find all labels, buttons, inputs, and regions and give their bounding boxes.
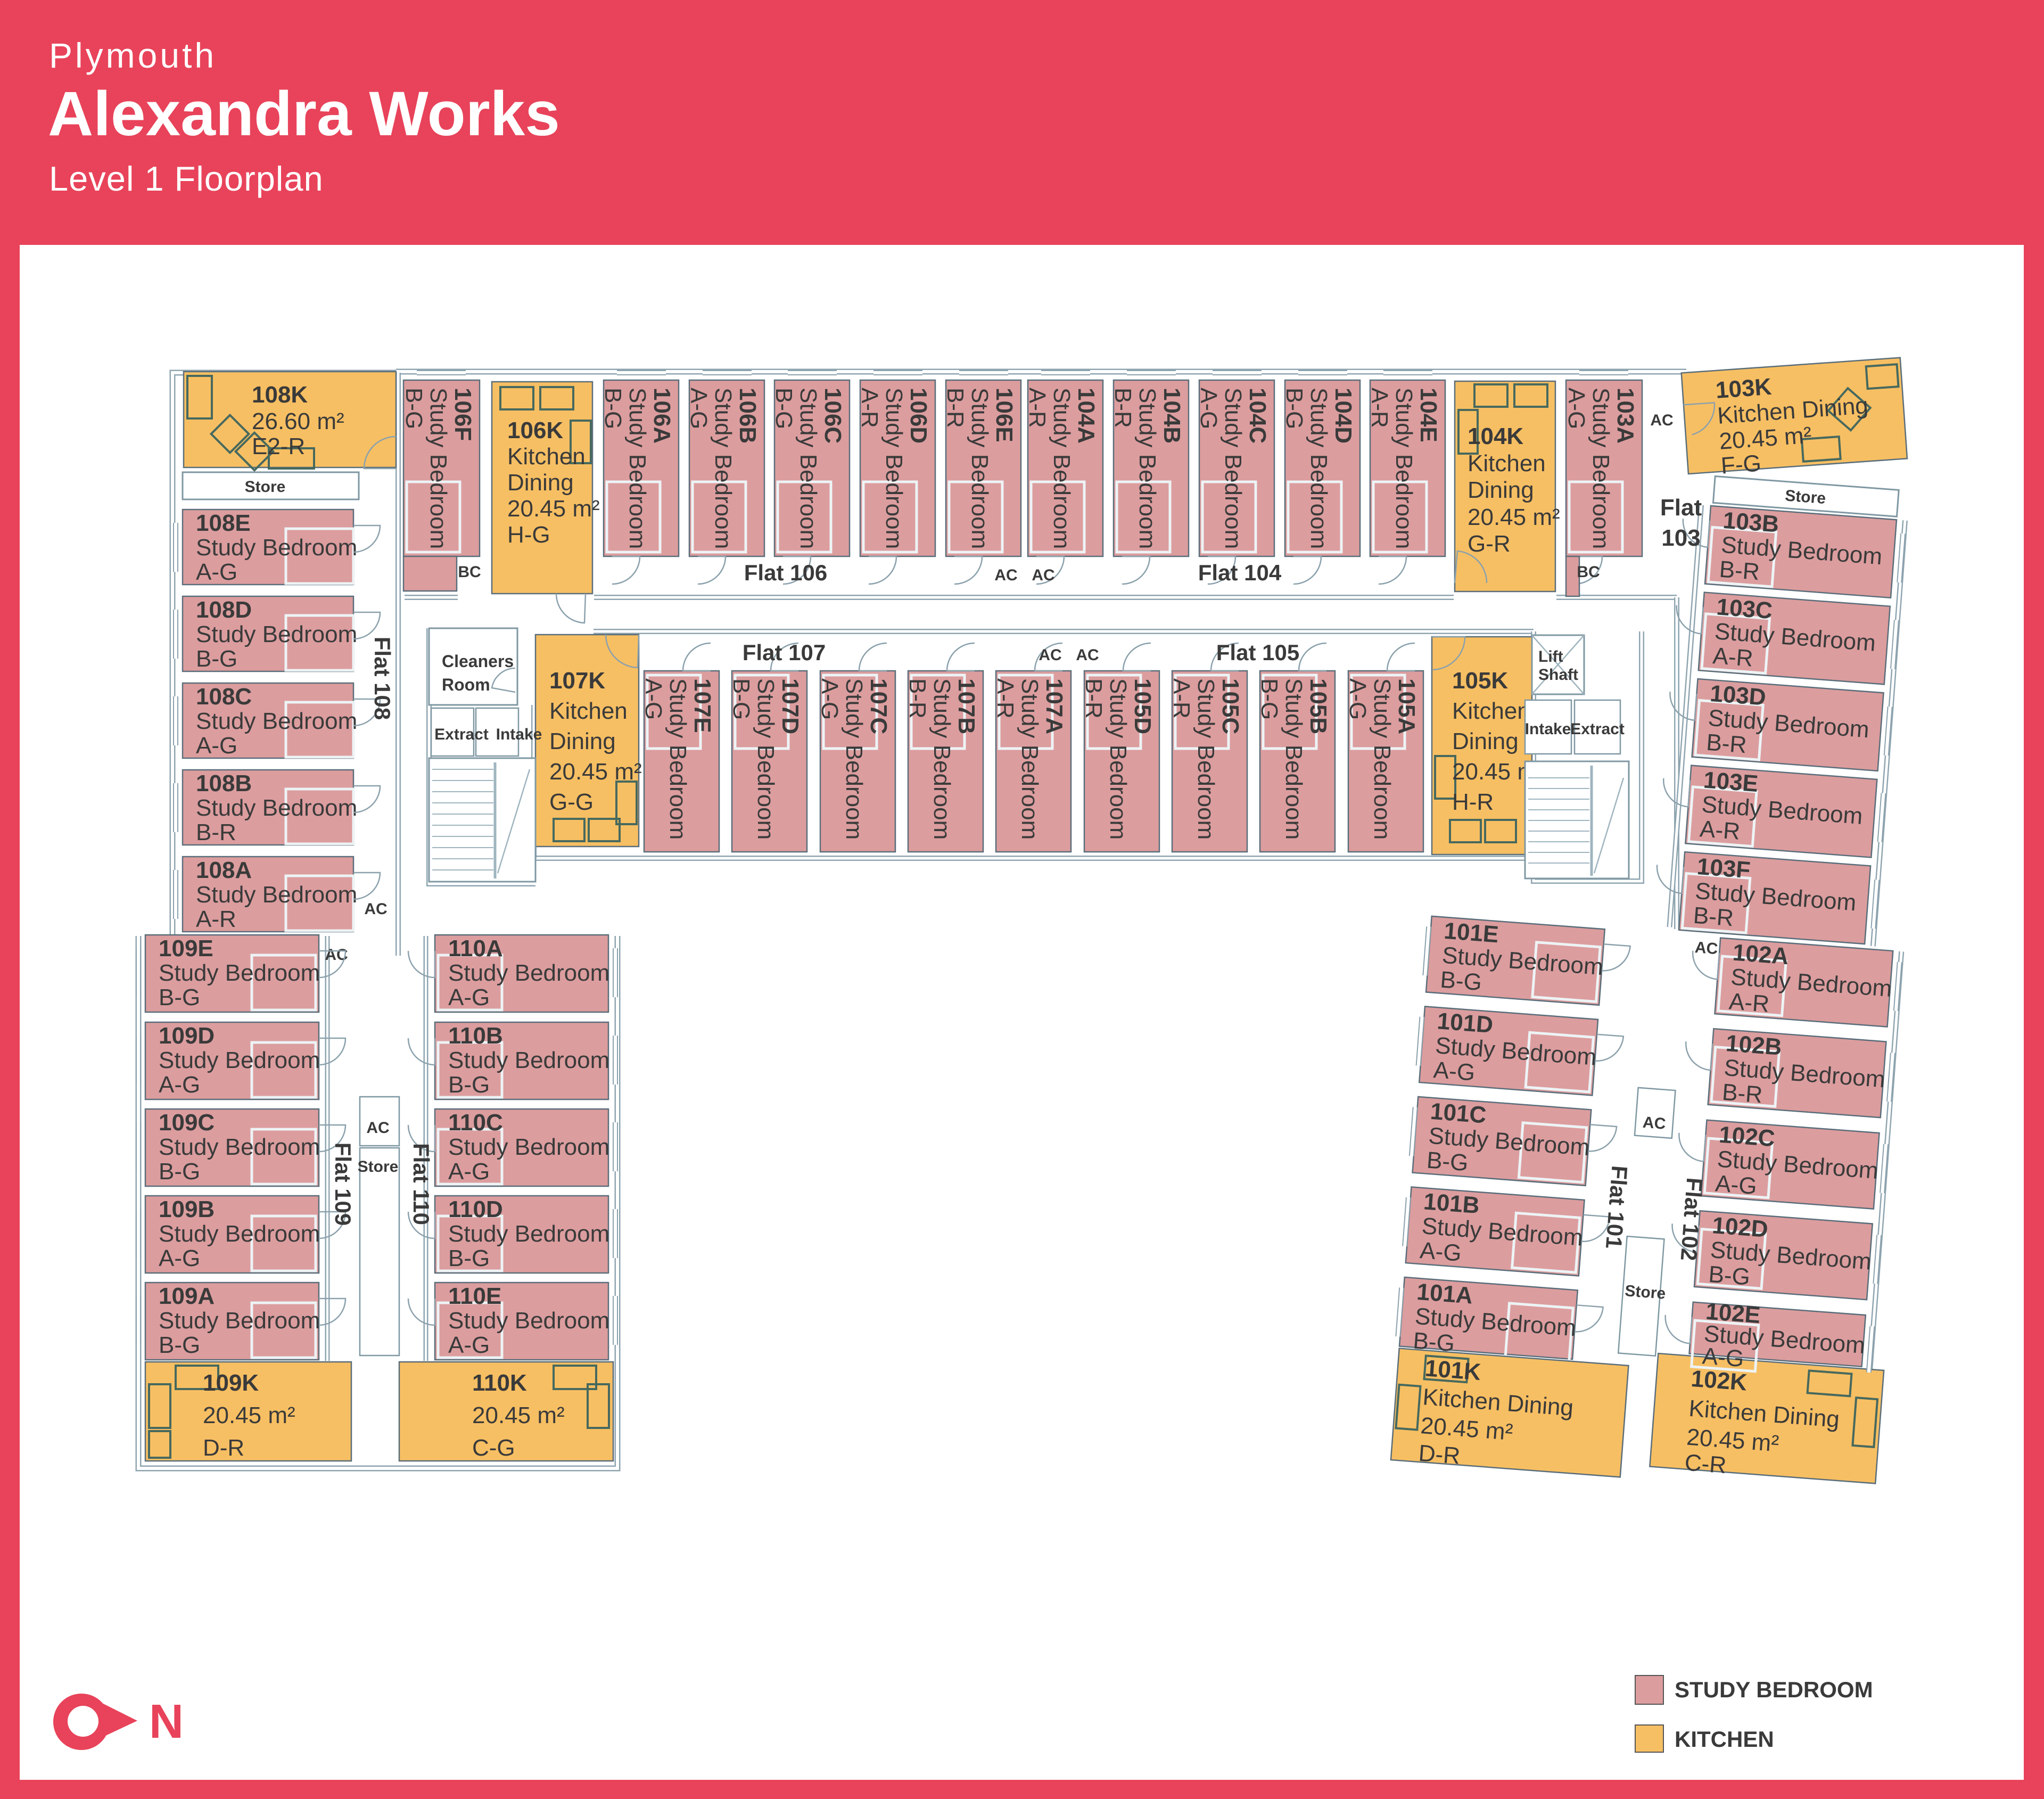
svg-text:BC: BC: [458, 563, 481, 581]
svg-text:107K: 107K: [549, 668, 605, 694]
svg-text:Lift: Lift: [1538, 648, 1563, 666]
svg-text:AC: AC: [994, 566, 1017, 584]
svg-text:D-R: D-R: [203, 1435, 244, 1461]
svg-text:20.45 m²: 20.45 m²: [472, 1402, 565, 1428]
svg-text:AC: AC: [325, 946, 348, 964]
svg-text:101K: 101K: [1424, 1355, 1482, 1385]
svg-text:Store: Store: [245, 478, 286, 496]
svg-text:Intake: Intake: [496, 726, 542, 743]
svg-text:20.45 m²: 20.45 m²: [203, 1402, 295, 1428]
svg-text:Store: Store: [1784, 487, 1826, 507]
svg-text:Dining: Dining: [549, 728, 616, 754]
svg-text:Plymouth: Plymouth: [49, 36, 217, 75]
svg-text:D-R: D-R: [1417, 1440, 1461, 1469]
svg-text:108K: 108K: [252, 382, 308, 408]
svg-text:Kitchen: Kitchen: [1468, 450, 1546, 477]
svg-text:Dining: Dining: [507, 470, 574, 496]
svg-text:F-G: F-G: [1720, 450, 1762, 479]
svg-text:AC: AC: [1032, 566, 1054, 584]
svg-text:AC: AC: [1694, 939, 1719, 958]
svg-text:105K: 105K: [1452, 668, 1508, 694]
svg-text:N: N: [149, 1695, 184, 1748]
svg-text:Cleaners: Cleaners: [442, 652, 514, 671]
svg-text:Store: Store: [358, 1158, 399, 1176]
svg-text:G-G: G-G: [549, 789, 594, 815]
svg-text:STUDY BEDROOM: STUDY BEDROOM: [1675, 1677, 1873, 1702]
svg-text:C-R: C-R: [1684, 1449, 1727, 1478]
svg-text:103K: 103K: [1715, 374, 1773, 404]
svg-text:20.45 m²: 20.45 m²: [549, 759, 642, 785]
svg-text:Kitchen: Kitchen: [549, 698, 628, 724]
svg-text:KITCHEN: KITCHEN: [1675, 1727, 1774, 1752]
svg-text:Flat 110: Flat 110: [409, 1143, 434, 1225]
svg-text:AC: AC: [1076, 646, 1099, 664]
svg-text:Flat 106: Flat 106: [744, 560, 827, 585]
svg-text:Intake: Intake: [1525, 720, 1571, 738]
svg-text:AC: AC: [366, 1119, 389, 1137]
svg-text:Flat 109: Flat 109: [331, 1143, 356, 1226]
svg-text:AC: AC: [364, 900, 387, 918]
svg-text:20.45 m²: 20.45 m²: [507, 496, 600, 522]
svg-text:109K: 109K: [203, 1370, 259, 1396]
svg-text:E2-R: E2-R: [252, 433, 305, 459]
svg-text:Level 1 Floorplan: Level 1 Floorplan: [49, 159, 324, 198]
svg-text:C-G: C-G: [472, 1435, 515, 1461]
svg-text:26.60 m²: 26.60 m²: [252, 408, 344, 434]
svg-text:BC: BC: [1577, 563, 1600, 581]
svg-text:Extract: Extract: [1570, 720, 1625, 738]
svg-text:110K: 110K: [472, 1370, 527, 1396]
svg-text:Alexandra Works: Alexandra Works: [48, 79, 560, 149]
svg-text:Flat: Flat: [1660, 495, 1702, 521]
svg-text:106K: 106K: [507, 417, 563, 443]
svg-text:AC: AC: [1650, 412, 1673, 429]
svg-text:Extract: Extract: [434, 726, 489, 743]
svg-text:104K: 104K: [1468, 423, 1523, 449]
svg-text:H-R: H-R: [1452, 789, 1494, 815]
svg-text:G-R: G-R: [1468, 531, 1511, 557]
svg-text:103: 103: [1661, 525, 1700, 551]
svg-text:Flat 108: Flat 108: [370, 637, 395, 720]
svg-text:Dining: Dining: [1452, 728, 1519, 754]
svg-text:Flat 104: Flat 104: [1198, 560, 1282, 585]
svg-text:H-G: H-G: [507, 522, 550, 548]
svg-text:Store: Store: [1624, 1282, 1666, 1303]
svg-text:Kitchen: Kitchen: [507, 443, 586, 470]
svg-text:Dining: Dining: [1468, 477, 1534, 503]
svg-text:AC: AC: [1642, 1114, 1667, 1133]
svg-text:Shaft: Shaft: [1538, 666, 1578, 684]
svg-text:Kitchen: Kitchen: [1452, 698, 1530, 724]
svg-text:AC: AC: [1039, 646, 1061, 664]
svg-text:20.45 m²: 20.45 m²: [1468, 504, 1560, 530]
svg-text:Room: Room: [442, 675, 490, 694]
svg-text:Flat 105: Flat 105: [1216, 640, 1299, 665]
svg-text:Flat 107: Flat 107: [743, 640, 826, 665]
